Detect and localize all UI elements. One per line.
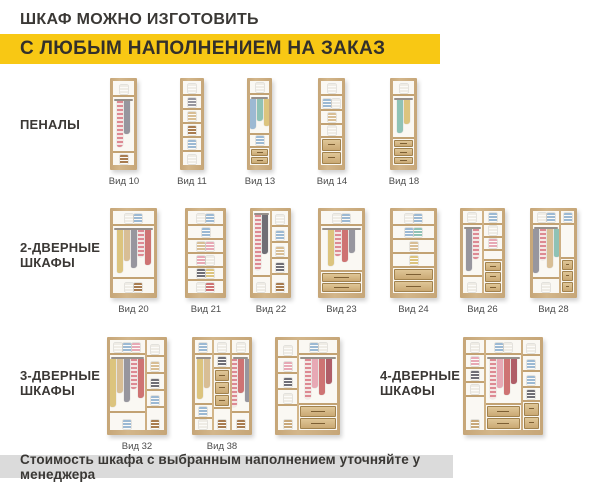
hanging-garment-teal xyxy=(257,99,263,121)
cabinet-vid-24 xyxy=(390,208,437,298)
shelf-compartment xyxy=(533,279,559,293)
shelf-compartment xyxy=(232,413,249,430)
folded-items-beige xyxy=(410,242,418,251)
empty-compartment xyxy=(561,225,574,259)
drawer-handle-icon xyxy=(566,286,570,287)
shelf-compartment xyxy=(463,277,482,293)
shelf-compartment xyxy=(466,369,484,383)
shelf-compartment xyxy=(523,388,541,402)
folded-items-white xyxy=(284,346,292,355)
shelf-compartment xyxy=(533,211,559,225)
folded-items-gray xyxy=(188,98,196,107)
garment-rack xyxy=(299,355,337,399)
drawer xyxy=(485,272,502,281)
folded-items-white xyxy=(206,256,214,265)
headline-line2: С ЛЮБЫМ НАПОЛНЕНИЕМ НА ЗАКАЗ xyxy=(20,38,385,60)
hanging-garment-gray xyxy=(131,230,137,268)
drawer xyxy=(394,269,433,280)
folded-items-beige xyxy=(151,362,159,371)
shelf-compartment xyxy=(272,243,289,259)
cabinet-column xyxy=(147,340,164,430)
hanging-garment-pinkstripe xyxy=(490,359,496,399)
folded-items-dark xyxy=(151,379,159,388)
cabinet-interior xyxy=(466,340,540,430)
drawer xyxy=(322,283,361,292)
folded-items-white xyxy=(188,155,196,164)
shelf-compartment xyxy=(183,110,201,124)
drawer-stack xyxy=(321,138,342,165)
shelf-compartment xyxy=(113,153,134,165)
folded-items-teal xyxy=(414,228,422,237)
shelf-compartment xyxy=(188,226,223,240)
folded-items-white xyxy=(504,343,512,352)
shelf-compartment xyxy=(321,111,342,125)
shelf-compartment xyxy=(183,138,201,152)
hanging-section xyxy=(232,355,249,413)
drawer-stack xyxy=(486,405,521,430)
folded-items-brown xyxy=(218,420,226,429)
section-label-line: 2-ДВЕРНЫЕ xyxy=(20,240,100,255)
cabinet-interior xyxy=(393,81,414,165)
hanger-rod-icon xyxy=(111,357,144,359)
cabinet-view-label: Вид 13 xyxy=(238,176,282,187)
hanger-rod-icon xyxy=(300,357,336,359)
hanging-section xyxy=(110,355,145,413)
shelf-compartment xyxy=(484,225,503,238)
garment-rack xyxy=(195,355,212,399)
hanging-garment-pinkstripe xyxy=(540,229,546,260)
cabinet-view-label: Вид 21 xyxy=(184,304,228,315)
folded-items-white xyxy=(199,420,207,429)
garment-rack xyxy=(393,96,414,133)
folded-items-blue xyxy=(564,213,572,222)
hanging-garment-red xyxy=(238,359,244,393)
cabinet-column xyxy=(523,340,541,430)
hanging-section xyxy=(393,96,414,139)
shelf-compartment xyxy=(272,211,289,227)
hanger-rod-icon xyxy=(534,227,558,229)
folded-items-blue xyxy=(527,376,535,385)
cabinet-interior xyxy=(393,211,434,293)
hanging-section xyxy=(463,225,482,277)
shelf-compartment xyxy=(523,356,541,372)
hanging-garment-gray xyxy=(245,359,249,402)
drawer-handle-icon xyxy=(529,422,534,423)
drawer-handle-icon xyxy=(311,411,325,412)
folded-items-dark xyxy=(197,269,205,278)
drawer xyxy=(215,370,230,381)
hanging-garment-yellow xyxy=(404,100,410,124)
hanging-garment-beige xyxy=(204,359,210,388)
shelf-compartment xyxy=(214,409,231,430)
cabinet-column xyxy=(533,211,559,293)
hanging-section xyxy=(533,225,559,279)
cabinet-interior xyxy=(110,340,164,430)
hanging-garment-red xyxy=(504,359,510,395)
shelf-compartment xyxy=(484,238,503,251)
shelf-compartment xyxy=(250,81,269,95)
folded-items-pink xyxy=(284,362,292,371)
hanging-garment-gray xyxy=(124,359,130,402)
hanging-section xyxy=(486,355,521,405)
drawer-handle-icon xyxy=(400,152,407,153)
drawer xyxy=(322,152,341,164)
drawer-handle-icon xyxy=(529,408,534,409)
cabinet-vid-28 xyxy=(530,208,577,298)
shelf-compartment xyxy=(393,211,434,226)
folded-items-blue xyxy=(276,231,284,240)
shelf-compartment xyxy=(188,281,223,293)
shelf-compartment xyxy=(110,413,145,430)
hanger-rod-icon xyxy=(196,357,211,359)
drawer-stack xyxy=(299,405,337,430)
cabinet-interior xyxy=(321,211,362,293)
shelf-compartment xyxy=(393,226,434,240)
shelf-compartment xyxy=(250,135,269,148)
section-label-line: ПЕНАЛЫ xyxy=(20,117,80,132)
section-label-4-door: 4-ДВЕРНЫЕШКАФЫ xyxy=(380,368,460,398)
cabinet-interior xyxy=(278,340,337,430)
folded-items-pink xyxy=(132,343,140,352)
cabinet-column xyxy=(486,340,521,430)
shelf-compartment xyxy=(278,406,297,430)
folded-items-beige xyxy=(197,242,205,251)
cabinet-vid-14 xyxy=(318,78,345,170)
hanger-rod-icon xyxy=(114,99,133,101)
hanging-garment-red xyxy=(145,230,151,265)
hanging-garment-blue xyxy=(250,99,256,129)
folded-items-white xyxy=(276,215,284,224)
folded-items-brown xyxy=(134,283,142,292)
hanger-rod-icon xyxy=(464,227,481,229)
drawer-handle-icon xyxy=(400,160,407,161)
cabinet-interior xyxy=(250,81,269,165)
hanging-section xyxy=(113,226,154,279)
shelf-compartment xyxy=(393,254,434,268)
shelf-compartment xyxy=(272,275,289,293)
drawer xyxy=(394,281,433,292)
folded-items-white xyxy=(120,85,128,94)
folded-items-dark xyxy=(471,371,479,380)
shelf-compartment xyxy=(214,340,231,355)
shelf-compartment xyxy=(466,355,484,369)
folded-items-dark xyxy=(527,390,535,399)
garment-rack xyxy=(486,355,521,399)
hanging-garment-yellow xyxy=(110,359,116,407)
folded-items-blue xyxy=(123,420,131,429)
folded-items-blue xyxy=(206,214,214,223)
hanger-rod-icon xyxy=(394,98,413,100)
cabinet-column xyxy=(253,211,270,293)
drawer-stack xyxy=(393,139,414,165)
shelf-compartment xyxy=(188,240,223,254)
shelf-compartment xyxy=(183,152,201,165)
hanging-garment-gray xyxy=(349,230,355,253)
hanging-section xyxy=(195,355,212,405)
drawer-stack xyxy=(250,148,269,165)
headline-line1: ШКАФ МОЖНО ИЗГОТОВИТЬ xyxy=(20,11,259,29)
drawer-stack xyxy=(484,261,503,293)
cabinet-view-label: Вид 23 xyxy=(318,304,365,315)
folded-items-white xyxy=(197,214,205,223)
folded-items-pink xyxy=(206,242,214,251)
cabinet-column xyxy=(484,211,503,293)
drawer xyxy=(487,406,520,417)
cabinet-column xyxy=(214,340,231,430)
cabinet-column xyxy=(561,211,574,293)
drawer-handle-icon xyxy=(497,423,509,424)
cabinet-column xyxy=(463,211,482,293)
shelf-compartment xyxy=(321,81,342,96)
folded-items-white xyxy=(188,84,196,93)
hanging-garment-red xyxy=(138,359,144,398)
shelf-compartment xyxy=(278,390,297,406)
hanging-garment-yellow xyxy=(197,359,203,399)
shelf-compartment xyxy=(272,227,289,243)
hanging-garment-pinkstripe xyxy=(232,359,236,407)
cabinet-view-label: Вид 28 xyxy=(530,304,577,315)
cabinet-view-label: Вид 18 xyxy=(382,176,426,187)
folded-items-white xyxy=(319,343,327,352)
shelf-compartment xyxy=(188,211,223,226)
folded-items-white xyxy=(405,214,413,223)
cabinet-vid-10 xyxy=(110,78,137,170)
cabinet-interior xyxy=(113,81,134,165)
folded-items-white xyxy=(471,385,479,394)
hanging-garment-teal xyxy=(554,229,560,257)
cabinet-interior xyxy=(188,211,223,293)
hanging-garment-red xyxy=(319,359,325,395)
shelf-compartment xyxy=(463,211,482,225)
cabinet-column xyxy=(278,340,297,430)
shelf-compartment xyxy=(466,340,484,355)
shelf-compartment xyxy=(523,340,541,356)
folded-items-white xyxy=(256,83,264,92)
folded-items-brown xyxy=(151,420,159,429)
garment-rack xyxy=(321,226,362,266)
shelf-compartment xyxy=(195,405,212,419)
hanging-garment-beige xyxy=(117,359,123,393)
empty-compartment xyxy=(484,251,503,261)
folded-items-white xyxy=(542,283,550,292)
cabinet-view-label: Вид 32 xyxy=(107,441,167,452)
hanger-rod-icon xyxy=(233,357,248,359)
hanging-section xyxy=(253,211,270,277)
cabinet-column xyxy=(183,81,201,165)
drawer xyxy=(487,418,520,429)
hanging-garment-pinkstripe xyxy=(335,230,341,256)
folded-items-beige xyxy=(328,113,336,122)
cabinet-column xyxy=(393,211,434,293)
drawer-handle-icon xyxy=(328,157,335,158)
folded-items-pink xyxy=(489,239,497,248)
hanging-garment-pinkstripe xyxy=(473,229,479,259)
cabinet-interior xyxy=(113,211,154,293)
cabinet-column xyxy=(188,211,223,293)
cabinet-column xyxy=(299,340,337,430)
drawer-handle-icon xyxy=(490,276,496,277)
cabinet-vid-26 xyxy=(460,208,505,298)
hanger-rod-icon xyxy=(251,97,268,99)
shelf-compartment xyxy=(188,268,223,281)
folded-items-basket xyxy=(471,420,479,429)
folded-items-brown xyxy=(276,283,284,292)
drawer xyxy=(562,260,573,270)
hanging-garment-gray xyxy=(533,229,539,273)
shelf-compartment xyxy=(113,279,154,293)
wardrobe-catalog-poster: ШКАФ МОЖНО ИЗГОТОВИТЬ С ЛЮБЫМ НАПОЛНЕНИЕ… xyxy=(0,0,600,500)
folded-items-brown xyxy=(237,420,245,429)
folded-items-red xyxy=(206,283,214,292)
drawer xyxy=(394,148,413,155)
shelf-compartment xyxy=(195,419,212,430)
shelf-compartment xyxy=(523,372,541,388)
drawer-stack xyxy=(321,272,362,293)
folded-items-dark xyxy=(284,378,292,387)
hanging-garment-pinkstripe xyxy=(131,359,137,389)
hanging-garment-pinkstripe xyxy=(138,230,144,257)
cabinet-column xyxy=(393,81,414,165)
folded-items-blue xyxy=(188,140,196,149)
folded-items-blue xyxy=(123,343,131,352)
cabinet-column xyxy=(250,81,269,165)
shelf-compartment xyxy=(232,340,249,355)
drawer xyxy=(524,417,540,430)
shelf-compartment xyxy=(147,374,164,391)
folded-items-blue xyxy=(323,99,331,108)
shelf-compartment xyxy=(195,340,212,355)
folded-items-yellow xyxy=(206,269,214,278)
drawer xyxy=(251,157,268,164)
cabinet-three-door-with-drawers xyxy=(275,337,340,435)
folded-items-white xyxy=(197,283,205,292)
cabinet-view-label: Вид 26 xyxy=(460,304,505,315)
shelf-compartment xyxy=(393,240,434,254)
drawer xyxy=(394,157,413,164)
cabinet-vid-23 xyxy=(318,208,365,298)
cabinet-four-door xyxy=(463,337,543,435)
section-label-line: ШКАФЫ xyxy=(20,383,100,398)
cabinet-column xyxy=(195,340,212,430)
drawer xyxy=(562,271,573,281)
hanging-garment-yellow xyxy=(117,230,123,273)
cabinet-vid-32 xyxy=(107,337,167,435)
garment-rack xyxy=(232,355,249,407)
footer-text: Стоимость шкафа с выбранным наполнением … xyxy=(20,452,453,482)
cabinet-view-label: Вид 11 xyxy=(170,176,214,187)
cabinet-column xyxy=(272,211,289,293)
hanging-garment-yellow xyxy=(328,230,334,266)
section-label-2-door: 2-ДВЕРНЫЕШКАФЫ xyxy=(20,240,100,270)
folded-items-dark xyxy=(276,263,284,272)
drawer xyxy=(485,283,502,292)
cabinet-interior xyxy=(463,211,502,293)
cabinet-view-label: Вид 20 xyxy=(110,304,157,315)
folded-items-blue xyxy=(414,214,422,223)
folded-items-brown xyxy=(188,126,196,135)
cabinet-column xyxy=(321,81,342,165)
shelf-compartment xyxy=(278,374,297,390)
folded-items-blue xyxy=(199,343,207,352)
folded-items-blue xyxy=(489,213,497,222)
folded-items-white xyxy=(328,84,336,93)
hanging-garment-pink xyxy=(497,359,503,388)
hanging-garment-pinkstripe xyxy=(255,215,261,270)
shelf-compartment xyxy=(183,81,201,96)
hanging-garment-beige xyxy=(124,230,130,261)
hanging-section xyxy=(299,355,337,405)
hanging-garment-dark xyxy=(262,215,268,254)
section-label-line: 3-ДВЕРНЫЕ xyxy=(20,368,100,383)
cabinet-vid-13 xyxy=(247,78,272,170)
shelf-compartment xyxy=(466,397,484,430)
cabinet-vid-38 xyxy=(192,337,252,435)
drawer-handle-icon xyxy=(406,286,421,287)
folded-items-white xyxy=(332,99,340,108)
shelf-compartment xyxy=(113,81,134,97)
drawer-handle-icon xyxy=(219,400,224,401)
shelf-compartment xyxy=(253,277,270,293)
cabinet-column xyxy=(321,211,362,293)
folded-items-white xyxy=(114,343,122,352)
shelf-compartment xyxy=(321,96,342,111)
shelf-compartment xyxy=(147,408,164,430)
cabinet-column xyxy=(232,340,249,430)
folded-items-white xyxy=(328,126,336,135)
drawer-handle-icon xyxy=(566,264,570,265)
drawer-handle-icon xyxy=(406,274,421,275)
drawer-handle-icon xyxy=(497,411,509,412)
garment-rack xyxy=(533,225,559,273)
folded-items-basket xyxy=(284,420,292,429)
folded-items-white xyxy=(284,394,292,403)
folded-items-white xyxy=(125,214,133,223)
hanging-section xyxy=(321,226,362,272)
drawer-handle-icon xyxy=(566,275,570,276)
cabinet-interior xyxy=(183,81,201,165)
drawer-stack xyxy=(561,259,574,293)
hanging-garment-pink xyxy=(312,359,318,388)
shelf-compartment xyxy=(484,211,503,225)
hanging-garment-teal xyxy=(397,100,403,133)
section-label-penaly: ПЕНАЛЫ xyxy=(20,117,80,132)
cabinet-view-label: Вид 22 xyxy=(249,304,293,315)
shelf-compartment xyxy=(272,259,289,275)
drawer xyxy=(562,282,573,292)
drawer xyxy=(300,418,336,429)
cabinet-view-label: Вид 24 xyxy=(390,304,437,315)
shelf-compartment xyxy=(183,124,201,138)
shelf-compartment xyxy=(113,211,154,226)
folded-items-pink xyxy=(471,357,479,366)
garment-rack xyxy=(113,226,154,273)
folded-items-pink xyxy=(197,256,205,265)
folded-items-white xyxy=(333,214,341,223)
cabinet-interior xyxy=(533,211,574,293)
shelf-compartment xyxy=(188,254,223,268)
folded-items-blue xyxy=(342,214,350,223)
drawer-handle-icon xyxy=(334,277,349,278)
folded-items-white xyxy=(257,283,265,292)
hanging-garment-gray xyxy=(124,101,130,134)
shelf-compartment xyxy=(183,96,201,110)
shelf-compartment xyxy=(278,340,297,358)
shelf-compartment xyxy=(321,211,362,226)
hanging-garment-gray xyxy=(466,229,472,271)
folded-items-beige xyxy=(188,112,196,121)
drawer-handle-icon xyxy=(219,387,224,388)
folded-items-white xyxy=(468,283,476,292)
